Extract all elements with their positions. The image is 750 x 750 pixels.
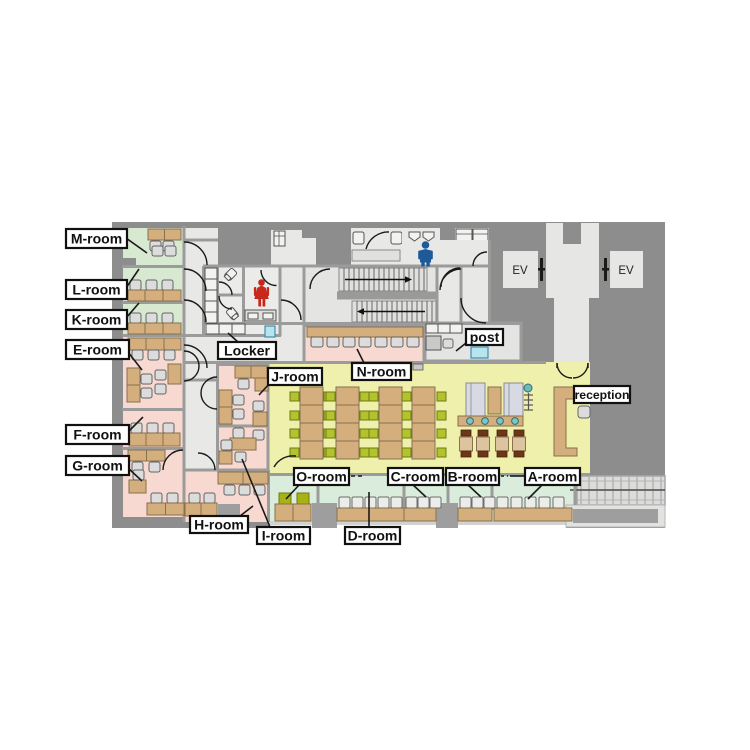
svg-text:EV: EV [512, 265, 528, 277]
svg-text:J-room: J-room [271, 369, 318, 385]
svg-text:C-room: C-room [391, 469, 441, 485]
svg-text:E-room: E-room [73, 342, 122, 358]
svg-text:O-room: O-room [296, 469, 347, 485]
svg-text:B-room: B-room [448, 469, 498, 485]
svg-text:EV: EV [618, 265, 634, 277]
svg-text:N-room: N-room [357, 364, 407, 380]
svg-text:F-room: F-room [73, 427, 121, 443]
svg-text:L-room: L-room [72, 282, 120, 298]
svg-text:A-room: A-room [528, 469, 578, 485]
svg-text:K-room: K-room [72, 312, 122, 328]
svg-text:G-room: G-room [72, 458, 123, 474]
svg-text:M-room: M-room [71, 231, 122, 247]
svg-text:reception: reception [575, 388, 630, 402]
svg-text:H-room: H-room [194, 517, 244, 533]
svg-text:I-room: I-room [262, 528, 306, 544]
svg-text:D-room: D-room [348, 528, 398, 544]
svg-text:post: post [470, 329, 500, 345]
svg-text:Locker: Locker [224, 343, 270, 359]
